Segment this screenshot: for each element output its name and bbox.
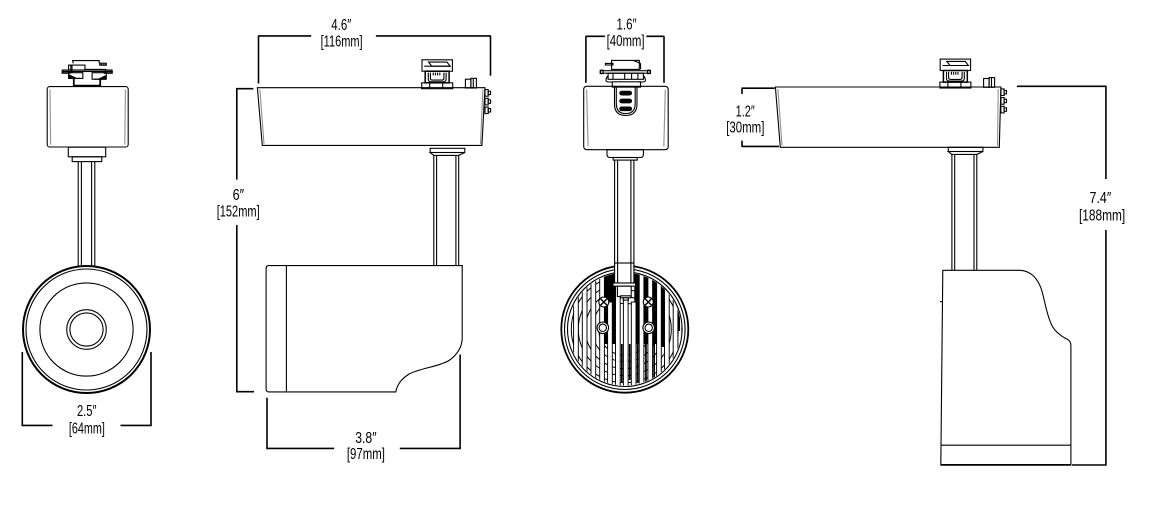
svg-text:7.4″: 7.4″ bbox=[1090, 190, 1112, 207]
svg-text:[64mm]: [64mm] bbox=[69, 421, 105, 438]
svg-text:1.6″: 1.6″ bbox=[617, 17, 637, 34]
svg-text:[116mm]: [116mm] bbox=[321, 34, 363, 51]
svg-text:4.6″: 4.6″ bbox=[331, 17, 351, 34]
svg-text:6″: 6″ bbox=[233, 187, 245, 204]
svg-text:[97mm]: [97mm] bbox=[347, 446, 385, 463]
svg-text:[40mm]: [40mm] bbox=[607, 33, 645, 50]
svg-text:[152mm]: [152mm] bbox=[217, 204, 260, 221]
svg-text:2.5″: 2.5″ bbox=[77, 403, 97, 420]
svg-text:1.2″: 1.2″ bbox=[736, 103, 755, 120]
svg-text:[30mm]: [30mm] bbox=[726, 120, 764, 137]
svg-text:3.8″: 3.8″ bbox=[355, 430, 377, 447]
svg-text:[188mm]: [188mm] bbox=[1079, 208, 1125, 225]
